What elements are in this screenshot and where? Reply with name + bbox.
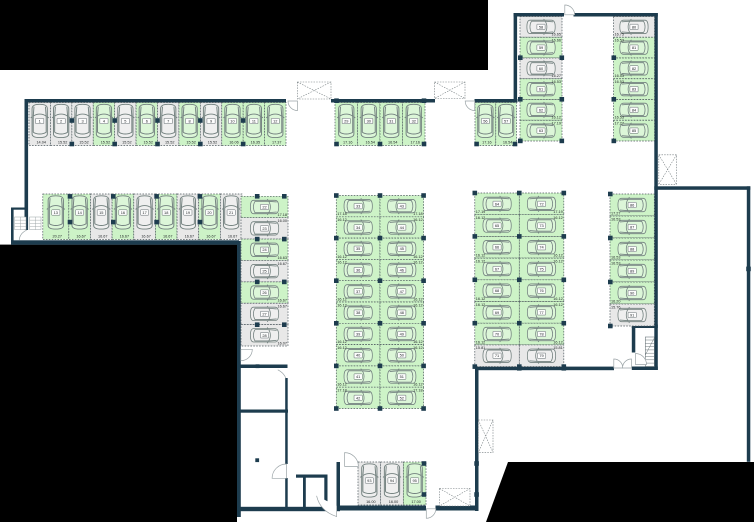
- svg-text:15.52: 15.52: [186, 141, 196, 145]
- svg-text:16.66: 16.66: [551, 39, 561, 43]
- svg-text:16.53: 16.53: [611, 255, 621, 259]
- svg-text:17.37: 17.37: [272, 141, 282, 145]
- svg-text:1: 1: [39, 118, 41, 123]
- svg-text:16.12: 16.12: [413, 383, 423, 387]
- svg-text:16.67: 16.67: [141, 235, 151, 239]
- svg-text:16.12: 16.12: [476, 254, 486, 258]
- svg-text:16.67: 16.67: [228, 235, 238, 239]
- svg-text:16.12: 16.12: [413, 346, 423, 350]
- svg-text:67: 67: [495, 266, 499, 271]
- svg-text:16.12: 16.12: [337, 303, 347, 307]
- svg-text:16.12: 16.12: [551, 116, 561, 120]
- svg-text:18: 18: [164, 210, 168, 215]
- svg-text:16.67: 16.67: [277, 299, 287, 303]
- svg-text:16.27: 16.27: [551, 74, 561, 78]
- svg-text:33: 33: [356, 204, 360, 209]
- svg-text:16.12: 16.12: [413, 255, 423, 259]
- svg-text:25: 25: [262, 269, 266, 274]
- svg-text:2: 2: [60, 118, 62, 123]
- svg-text:21: 21: [229, 210, 233, 215]
- svg-text:16.00: 16.00: [366, 500, 376, 504]
- svg-text:6: 6: [146, 118, 148, 123]
- svg-text:7: 7: [167, 118, 169, 123]
- svg-text:16.12: 16.12: [337, 346, 347, 350]
- svg-text:17: 17: [142, 210, 146, 215]
- svg-text:16.53: 16.53: [615, 116, 625, 120]
- svg-text:58: 58: [539, 24, 543, 29]
- svg-text:16.54: 16.54: [388, 141, 398, 145]
- svg-text:17.18: 17.18: [337, 389, 347, 393]
- svg-text:16.67: 16.67: [277, 262, 287, 266]
- svg-text:16.12: 16.12: [553, 303, 563, 307]
- svg-text:3: 3: [81, 118, 83, 123]
- svg-text:16.12: 16.12: [476, 340, 486, 344]
- svg-text:17.18: 17.18: [277, 213, 287, 217]
- svg-text:29: 29: [344, 118, 348, 123]
- svg-text:16.12: 16.12: [553, 254, 563, 258]
- svg-text:17.19: 17.19: [476, 210, 486, 214]
- svg-text:87: 87: [630, 224, 634, 229]
- svg-text:16.65: 16.65: [551, 33, 561, 37]
- svg-text:88: 88: [630, 246, 634, 251]
- svg-text:65: 65: [495, 223, 499, 228]
- svg-text:16.12: 16.12: [337, 383, 347, 387]
- svg-text:61: 61: [539, 87, 543, 92]
- svg-text:16.12: 16.12: [553, 340, 563, 344]
- svg-text:48: 48: [400, 310, 404, 315]
- svg-text:15.52: 15.52: [165, 141, 175, 145]
- svg-text:16.67: 16.67: [163, 235, 173, 239]
- svg-text:16.12: 16.12: [476, 259, 486, 263]
- svg-text:77: 77: [539, 310, 543, 315]
- svg-text:5: 5: [124, 118, 126, 123]
- svg-text:62: 62: [539, 107, 543, 112]
- svg-text:81: 81: [632, 45, 636, 50]
- svg-text:9: 9: [210, 118, 212, 123]
- svg-text:16.75: 16.75: [615, 33, 625, 37]
- svg-text:16.63: 16.63: [277, 256, 287, 260]
- svg-text:57: 57: [504, 118, 508, 123]
- svg-text:16.67: 16.67: [185, 235, 195, 239]
- svg-text:32: 32: [412, 118, 416, 123]
- svg-text:15.52: 15.52: [101, 141, 111, 145]
- svg-text:91: 91: [630, 312, 634, 317]
- svg-text:16.06: 16.06: [229, 141, 239, 145]
- svg-text:15.52: 15.52: [144, 141, 154, 145]
- svg-text:16.12: 16.12: [413, 261, 423, 265]
- svg-text:17.16: 17.16: [482, 141, 492, 145]
- svg-text:20.27: 20.27: [53, 235, 63, 239]
- svg-text:27: 27: [262, 311, 266, 316]
- svg-text:66: 66: [495, 245, 499, 250]
- svg-text:11: 11: [252, 118, 256, 123]
- svg-text:15.52: 15.52: [58, 141, 68, 145]
- svg-text:16.12: 16.12: [553, 297, 563, 301]
- svg-text:16.12: 16.12: [413, 303, 423, 307]
- svg-text:31: 31: [389, 118, 393, 123]
- svg-text:13: 13: [54, 210, 58, 215]
- svg-text:82: 82: [632, 66, 636, 71]
- svg-text:16.12: 16.12: [337, 340, 347, 344]
- svg-text:17.19: 17.19: [551, 122, 561, 126]
- svg-text:17.27: 17.27: [611, 211, 621, 215]
- svg-text:72: 72: [539, 201, 543, 206]
- svg-text:16.53: 16.53: [615, 39, 625, 43]
- svg-text:17.00: 17.00: [411, 500, 421, 504]
- svg-text:16.67: 16.67: [120, 235, 130, 239]
- svg-text:47: 47: [400, 289, 404, 294]
- svg-text:17.19: 17.19: [553, 210, 563, 214]
- svg-text:76: 76: [539, 288, 543, 293]
- svg-text:16.53: 16.53: [615, 74, 625, 78]
- svg-text:16.12: 16.12: [476, 303, 486, 307]
- svg-text:23: 23: [262, 226, 266, 231]
- svg-text:26: 26: [262, 290, 266, 295]
- svg-text:16.12: 16.12: [413, 297, 423, 301]
- svg-text:15.76: 15.76: [611, 305, 621, 309]
- svg-text:56: 56: [483, 118, 487, 123]
- svg-text:16.12: 16.12: [337, 297, 347, 301]
- svg-text:68: 68: [495, 288, 499, 293]
- svg-text:17.18: 17.18: [337, 212, 347, 216]
- svg-text:16.54: 16.54: [503, 141, 513, 145]
- svg-text:89: 89: [630, 268, 634, 273]
- svg-text:16.20: 16.20: [611, 299, 621, 303]
- svg-text:15.52: 15.52: [79, 141, 89, 145]
- svg-text:79: 79: [539, 353, 543, 358]
- svg-text:95: 95: [413, 478, 417, 483]
- svg-text:16.12: 16.12: [413, 218, 423, 222]
- svg-text:16.53: 16.53: [615, 80, 625, 84]
- svg-text:16.53: 16.53: [611, 261, 621, 265]
- svg-text:36: 36: [356, 268, 360, 273]
- svg-text:16.12: 16.12: [413, 340, 423, 344]
- svg-text:16.00: 16.00: [389, 500, 399, 504]
- svg-text:78: 78: [539, 332, 543, 337]
- svg-text:14.04: 14.04: [36, 141, 46, 145]
- svg-text:16.12: 16.12: [337, 255, 347, 259]
- svg-text:16.53: 16.53: [551, 80, 561, 84]
- svg-text:38: 38: [356, 310, 360, 315]
- svg-text:59: 59: [539, 45, 543, 50]
- svg-text:16.54: 16.54: [365, 141, 375, 145]
- svg-text:16.12: 16.12: [337, 218, 347, 222]
- svg-text:49: 49: [400, 331, 404, 336]
- svg-text:28: 28: [262, 333, 266, 338]
- svg-text:71: 71: [495, 353, 499, 358]
- svg-text:16.12: 16.12: [476, 297, 486, 301]
- svg-text:86: 86: [630, 202, 634, 207]
- svg-text:37: 37: [356, 289, 360, 294]
- svg-text:35: 35: [356, 246, 360, 251]
- svg-text:16.12: 16.12: [337, 261, 347, 265]
- svg-text:12: 12: [273, 118, 277, 123]
- svg-text:16.67: 16.67: [98, 235, 108, 239]
- svg-text:15.52: 15.52: [208, 141, 218, 145]
- svg-text:16.00: 16.00: [277, 219, 287, 223]
- svg-text:45: 45: [400, 246, 404, 251]
- svg-text:42: 42: [356, 395, 360, 400]
- svg-text:39: 39: [356, 331, 360, 336]
- svg-text:16.07: 16.07: [277, 341, 287, 345]
- svg-text:41: 41: [356, 374, 360, 379]
- svg-text:19: 19: [186, 210, 190, 215]
- svg-text:22: 22: [262, 204, 266, 209]
- svg-text:16.12: 16.12: [476, 216, 486, 220]
- svg-text:16.12: 16.12: [553, 216, 563, 220]
- svg-text:17.16: 17.16: [410, 141, 420, 145]
- svg-text:46: 46: [400, 268, 404, 273]
- svg-text:16.35: 16.35: [251, 141, 261, 145]
- svg-text:75: 75: [539, 266, 543, 271]
- svg-text:52: 52: [400, 395, 404, 400]
- svg-text:17.16: 17.16: [343, 141, 353, 145]
- svg-text:16: 16: [121, 210, 125, 215]
- svg-text:16.53: 16.53: [611, 217, 621, 221]
- svg-text:93: 93: [367, 478, 371, 483]
- svg-text:15: 15: [99, 210, 103, 215]
- svg-text:17.27: 17.27: [615, 122, 625, 126]
- svg-text:17.18: 17.18: [413, 389, 423, 393]
- svg-text:16.12: 16.12: [553, 259, 563, 263]
- svg-text:43: 43: [400, 204, 404, 209]
- svg-text:17.18: 17.18: [413, 212, 423, 216]
- svg-text:16.67: 16.67: [277, 305, 287, 309]
- svg-text:16.67: 16.67: [206, 235, 216, 239]
- svg-text:15.52: 15.52: [122, 141, 132, 145]
- svg-text:83: 83: [632, 87, 636, 92]
- svg-text:8: 8: [189, 118, 191, 123]
- svg-text:16.67: 16.67: [76, 235, 86, 239]
- svg-text:63: 63: [539, 128, 543, 133]
- svg-text:69: 69: [495, 310, 499, 315]
- svg-text:15.81: 15.81: [553, 346, 563, 350]
- svg-text:85: 85: [632, 128, 636, 133]
- svg-text:73: 73: [539, 223, 543, 228]
- svg-text:15.81: 15.81: [476, 346, 486, 350]
- svg-text:51: 51: [400, 374, 404, 379]
